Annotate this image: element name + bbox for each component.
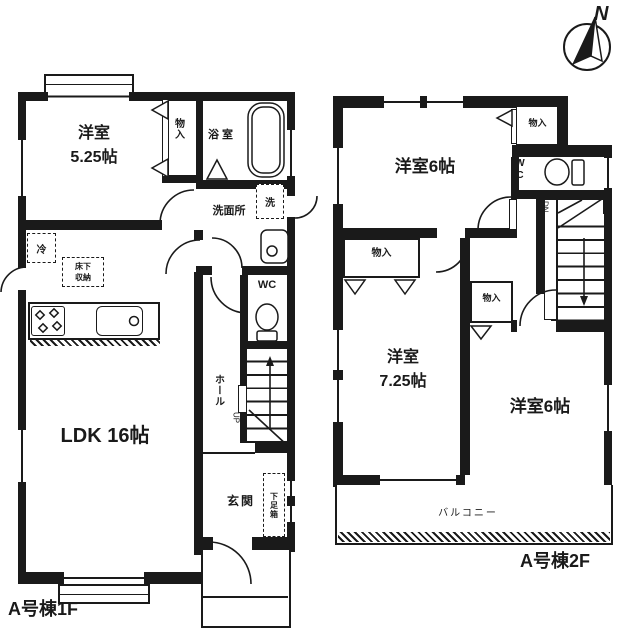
f1-wall-stair-west-a [240,349,247,385]
f2-wc-label: WC [514,158,525,182]
f1-back-door [287,194,295,219]
f1-window-right-entrance-a [287,479,295,498]
f2-wall-right-upper [558,96,568,151]
f1-kitchen-sink [96,306,143,336]
floorplan-page: { "page": { "background": "#ffffff", "in… [0,0,635,640]
f2-closet-north-label: 物入 [521,119,554,128]
f1-stairs [247,349,287,443]
underfloor-label-1: 床下 [75,261,91,272]
f2-window-right-bedroomSE [604,383,612,433]
fridge-label: 冷 [37,241,47,256]
f2-bedroomN-label: 洋室6帖 [360,158,490,176]
f2-window-left-bedroomN [333,146,343,206]
f2-window-south-bedroomW [378,475,458,485]
f1-wall-entrance-south-a [203,537,213,550]
door-swing-arc [166,240,200,274]
f2-wall-bedroomW-east [460,238,470,475]
toilet-icon [545,159,569,185]
f2-bedroomW-size: 7.25帖 [348,374,458,391]
f1-window-right-entrance-b [287,504,295,524]
f1-bath-label: 浴室 [200,130,244,142]
f2-closet-west-label: 物入 [343,249,420,260]
f2-stairs [558,214,604,320]
f1-stove [31,306,65,336]
f1-porch [201,550,291,628]
f1-washer-box: 洗 [256,184,284,219]
f2-bedroomW-label: 洋室 [348,350,458,367]
f1-bedroom-size: 5.25帖 [26,150,162,167]
f1-underfloor-storage-box: 床下 収納 [62,257,104,287]
f2-caption: A号棟2F [520,552,620,571]
f1-washroom-label: 洗面所 [200,206,258,218]
f2-window-top-a [382,96,422,108]
f2-balcony-edge-hatch [338,532,610,542]
f2-wall-bedroomN-south-a [343,228,437,238]
f2-wall-stair-west [536,199,544,294]
toilet-icon [256,304,278,330]
f1-stairs-direction: UP [231,412,239,423]
bathtub-icon [252,107,280,173]
f1-wall-wc-south [240,341,295,349]
f2-window-top-b [425,96,465,108]
door-swing-arc [212,238,242,268]
f2-bedroomSE-label: 洋室6帖 [478,398,602,416]
f1-porch-step-line [203,596,288,598]
f1-wall-entrance-south-b [252,537,295,550]
f2-balcony-label: バルコニー [420,509,516,520]
f1-side-door-left [18,266,26,292]
f2-bedroomN-door-leaf [509,199,517,230]
f1-wall-bedroom-south [26,220,162,230]
f1-window-left-bedroom [18,138,26,198]
f1-closet-label: 物入 [172,118,183,140]
f1-wall-entrance-north [255,443,295,453]
vanity-sink-icon [261,230,288,263]
f1-wall-stair-west-b [240,413,247,443]
door-swing-arc [295,196,317,218]
vanity-sink-icon [267,246,277,256]
f1-wc-label: WC [247,280,287,292]
f1-hall-label: ホール [212,374,223,407]
folding-door-icon [471,326,491,339]
f1-caption: A号棟1F [8,600,138,619]
bathtub-icon [248,103,284,177]
f1-window-top [46,92,131,101]
f1-bay-window-top [44,74,134,94]
f1-closet-door-panel [162,100,169,176]
toilet-icon [572,160,584,185]
compass-north-label: N [594,4,608,25]
f1-ldk-label: LDK 16帖 [30,426,180,447]
door-swing-arc [160,190,194,224]
f2-closet-north-door-leaf [511,109,517,144]
f2-window-left-bedroomW-b [333,378,343,424]
f1-wall-ldk-east-a [194,230,203,240]
f2-wall-jog [512,145,612,157]
folding-door-icon [497,110,512,126]
f2-stair-rail [556,199,558,320]
bath-door-icon [207,160,227,179]
f2-wall-wc-south [511,190,612,199]
f1-wall-ldk-east-b [194,272,203,555]
f2-stairs-direction: DN [540,201,548,213]
toilet-icon [257,331,277,341]
f2-closet-center-label: 物入 [470,294,513,303]
f1-window-right-bath [287,128,295,178]
f1-entrance-label: 玄関 [210,495,272,508]
folding-door-icon [395,280,415,294]
door-swing-arc [478,197,511,230]
f2-window-left-bedroomW-a [333,328,343,372]
f2-window-right-wc [604,156,612,190]
f1-bedroom-label: 洋室 [26,126,162,143]
washer-label: 洗 [265,194,275,209]
underfloor-label-2: 収納 [75,272,91,283]
f1-counter-edge-hatch [30,340,160,346]
f1-window-left-ldk [18,428,26,484]
f2-wall-bedroomSE-north-b [556,320,612,332]
f1-window-bottom-ldk [62,572,146,584]
folding-door-icon [345,280,365,294]
f1-entrance-step-line [203,452,255,454]
f1-stair-rail [238,385,247,413]
f1-wall-washroom-south-b [242,266,295,275]
f1-fridge-box: 冷 [27,233,56,263]
